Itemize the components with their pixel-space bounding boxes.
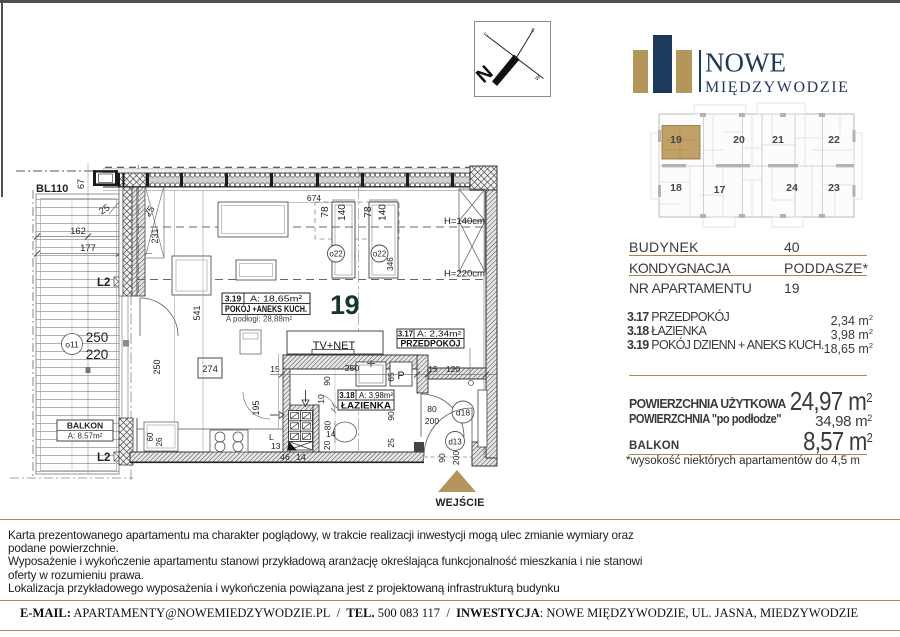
svg-text:20: 20 [322, 441, 332, 451]
svg-text:195: 195 [251, 400, 261, 415]
svg-text:177: 177 [80, 243, 96, 254]
svg-text:3.17: 3.17 [398, 330, 413, 339]
svg-text:A: 18,65m²: A: 18,65m² [250, 294, 302, 304]
svg-text:POKÓJ +ANEKS KUCH.: POKÓJ +ANEKS KUCH. [225, 303, 307, 315]
svg-text:200: 200 [425, 416, 439, 426]
svg-text:80: 80 [427, 404, 437, 414]
svg-text:250: 250 [345, 363, 359, 373]
svg-text:120: 120 [446, 364, 460, 374]
svg-text:19: 19 [670, 134, 682, 146]
svg-text:78: 78 [363, 206, 374, 218]
svg-text:H=140cm: H=140cm [444, 216, 485, 227]
svg-text:15: 15 [428, 364, 438, 374]
svg-text:541: 541 [192, 305, 202, 320]
svg-text:346: 346 [386, 257, 395, 271]
svg-text:60: 60 [146, 432, 155, 441]
svg-text:A: 2,34m²: A: 2,34m² [417, 330, 462, 339]
svg-text:90: 90 [322, 376, 332, 386]
svg-text:90: 90 [437, 453, 447, 463]
svg-text:13: 13 [271, 441, 281, 451]
svg-text:250: 250 [152, 359, 162, 374]
svg-text:200: 200 [451, 451, 461, 465]
svg-text:25: 25 [386, 438, 396, 448]
svg-text:PRZEDPOKÓJ: PRZEDPOKÓJ [401, 338, 461, 350]
svg-text:65: 65 [386, 372, 396, 382]
svg-text:H=220cm: H=220cm [444, 269, 485, 280]
svg-text:21: 21 [772, 134, 784, 146]
svg-text:220: 220 [86, 347, 109, 362]
svg-text:24: 24 [786, 182, 798, 194]
svg-text:14: 14 [296, 452, 306, 462]
svg-text:274: 274 [202, 364, 218, 375]
svg-text:674: 674 [307, 193, 321, 203]
svg-text:o22: o22 [373, 250, 387, 259]
svg-text:14: 14 [326, 429, 336, 439]
svg-text:67: 67 [76, 179, 86, 189]
svg-text:26: 26 [155, 437, 164, 446]
svg-text:3.19: 3.19 [225, 294, 242, 304]
svg-text:20: 20 [733, 134, 745, 146]
svg-text:BALKON: BALKON [67, 421, 103, 431]
svg-text:17: 17 [714, 184, 726, 196]
svg-text:46: 46 [280, 452, 290, 462]
svg-text:90: 90 [386, 411, 396, 421]
svg-text:ŁAZIENKA: ŁAZIENKA [341, 401, 391, 412]
svg-text:BL110: BL110 [36, 183, 68, 195]
svg-text:L2: L2 [97, 452, 110, 464]
svg-text:19: 19 [330, 290, 360, 320]
svg-text:o22: o22 [329, 250, 343, 259]
svg-text:A podłogi: 28,88m²: A podłogi: 28,88m² [226, 315, 292, 324]
svg-text:MIĘDZYWODZIE: MIĘDZYWODZIE [705, 79, 850, 96]
svg-text:140: 140 [337, 204, 348, 221]
svg-text:NOWE: NOWE [705, 48, 786, 78]
svg-text:23: 23 [828, 182, 840, 194]
svg-text:o11: o11 [65, 340, 79, 350]
svg-text:A: 8,57m²: A: 8,57m² [68, 432, 103, 441]
svg-text:A: 3,98m²: A: 3,98m² [359, 391, 393, 400]
svg-text:162: 162 [70, 226, 86, 237]
svg-text:3.18: 3.18 [339, 391, 355, 400]
svg-text:22: 22 [828, 134, 840, 146]
svg-text:18: 18 [670, 182, 682, 194]
svg-text:WEJŚCIE: WEJŚCIE [435, 496, 484, 509]
svg-text:10: 10 [316, 394, 326, 404]
svg-text:L2: L2 [97, 277, 110, 289]
svg-text:d13: d13 [448, 438, 462, 447]
svg-text:78: 78 [320, 206, 331, 218]
svg-text:231: 231 [150, 228, 160, 243]
svg-text:P: P [397, 370, 404, 382]
svg-text:140: 140 [378, 204, 389, 221]
svg-text:250: 250 [86, 330, 109, 345]
